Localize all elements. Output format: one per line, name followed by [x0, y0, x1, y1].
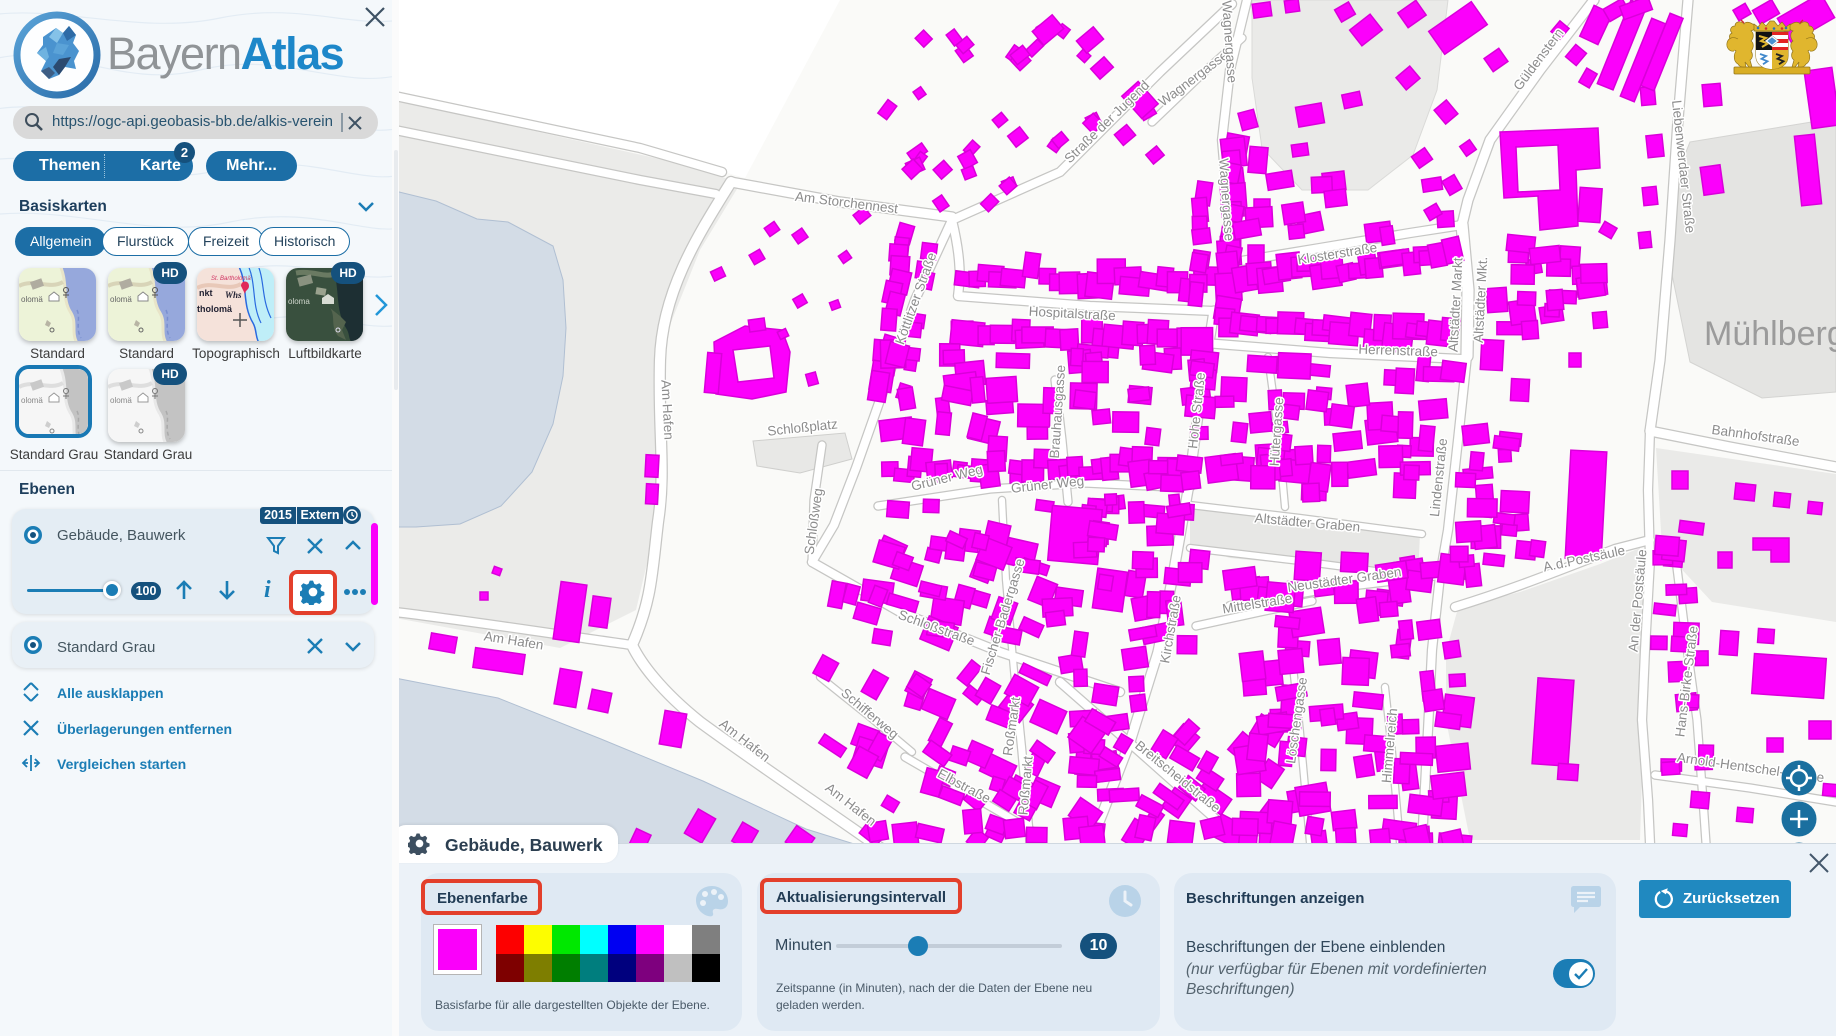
svg-text:tholomä: tholomä: [197, 304, 233, 314]
svg-text:Am Hafen: Am Hafen: [658, 379, 676, 440]
svg-text:Herrenstraße: Herrenstraße: [1358, 342, 1438, 360]
svg-text:olomä: olomä: [21, 295, 43, 304]
svg-text:olomä: olomä: [110, 396, 132, 405]
svg-text:St. Bartholomä: St. Bartholomä: [211, 276, 251, 282]
svg-text:Mühlberg: Mühlberg: [1704, 315, 1836, 353]
svg-text:nkt: nkt: [199, 288, 213, 298]
svg-text:olomä: olomä: [110, 295, 132, 304]
svg-text:olomä: olomä: [21, 396, 43, 405]
svg-text:oloma: oloma: [288, 297, 310, 306]
svg-text:Whs: Whs: [225, 290, 242, 300]
